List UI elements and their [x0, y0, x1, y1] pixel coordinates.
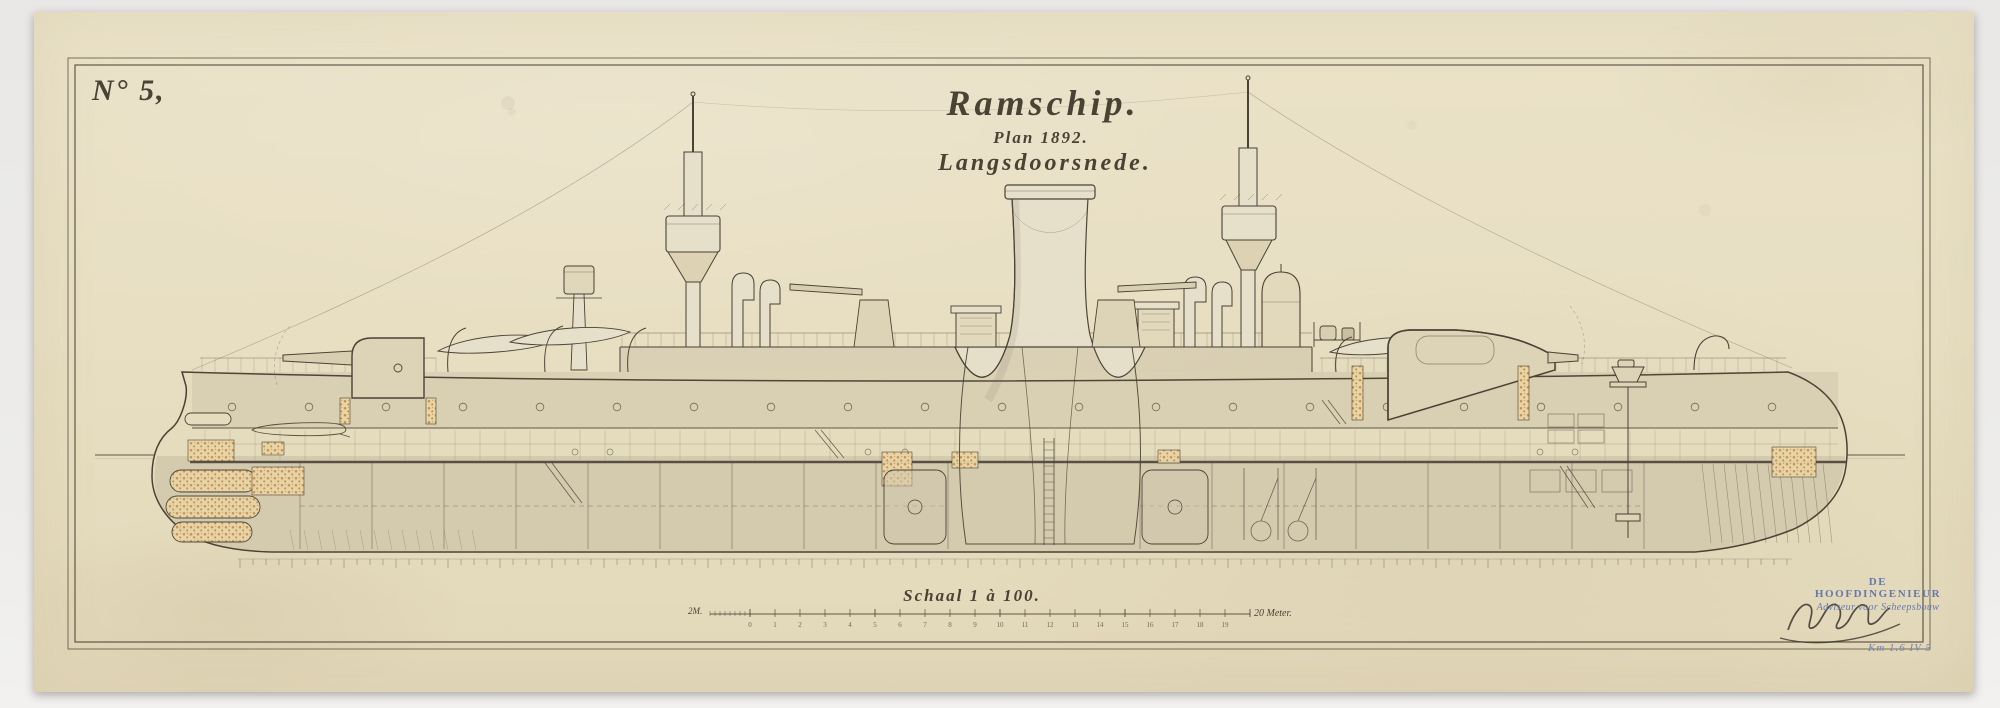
- sheet-number: N° 5,: [92, 74, 166, 108]
- svg-text:4: 4: [848, 621, 852, 629]
- svg-text:17: 17: [1172, 621, 1180, 629]
- scale-bar-end-label: 20 Meter.: [1254, 608, 1292, 619]
- drawing-title: Ramschip.: [946, 82, 1139, 124]
- svg-text:9: 9: [973, 621, 977, 629]
- archive-note: Km 1.6 IV 5: [1868, 642, 1932, 654]
- svg-text:7: 7: [923, 621, 927, 629]
- conning-tower: [1262, 264, 1300, 347]
- svg-text:3: 3: [823, 621, 827, 629]
- scanned-sheet-stage: 012345678910111213141516171819 N° 5, Ram…: [0, 0, 2000, 708]
- underwater-wash: [154, 456, 1845, 552]
- svg-text:2: 2: [798, 621, 802, 629]
- fore-fighting-mast: [664, 92, 726, 347]
- scale-label: Schaal 1 à 100.: [903, 586, 1041, 606]
- topside-wash: [192, 372, 1838, 428]
- svg-text:14: 14: [1097, 621, 1105, 629]
- scale-bar-left-label: 2M.: [688, 606, 702, 616]
- station-scale: [238, 559, 1792, 568]
- hull: [152, 372, 1847, 552]
- svg-text:12: 12: [1047, 621, 1055, 629]
- svg-text:18: 18: [1197, 621, 1205, 629]
- svg-text:13: 13: [1072, 621, 1080, 629]
- svg-text:6: 6: [898, 621, 902, 629]
- svg-text:8: 8: [948, 621, 952, 629]
- svg-text:5: 5: [873, 621, 877, 629]
- svg-text:1: 1: [773, 621, 777, 629]
- view-label: Langsdoorsnede.: [938, 150, 1152, 177]
- svg-text:15: 15: [1122, 621, 1130, 629]
- stamp-line1: DE HOOFDINGENIEUR: [1815, 576, 1941, 600]
- svg-text:11: 11: [1022, 621, 1029, 629]
- scale-bar: 012345678910111213141516171819: [710, 609, 1250, 629]
- drawing-subtitle: Plan 1892.: [993, 128, 1089, 148]
- searchlight: [556, 266, 602, 370]
- bow-bollard: [185, 413, 231, 425]
- chief-engineer-stamp: DE HOOFDINGENIEUR Adviseur voor Scheepsb…: [1815, 576, 1941, 613]
- ram-bow-cells: [166, 470, 260, 542]
- stamp-line2: Adviseur voor Scheepsbouw: [1815, 602, 1941, 613]
- svg-text:0: 0: [748, 621, 752, 629]
- svg-text:16: 16: [1147, 621, 1155, 629]
- svg-text:19: 19: [1222, 621, 1230, 629]
- svg-text:10: 10: [997, 621, 1005, 629]
